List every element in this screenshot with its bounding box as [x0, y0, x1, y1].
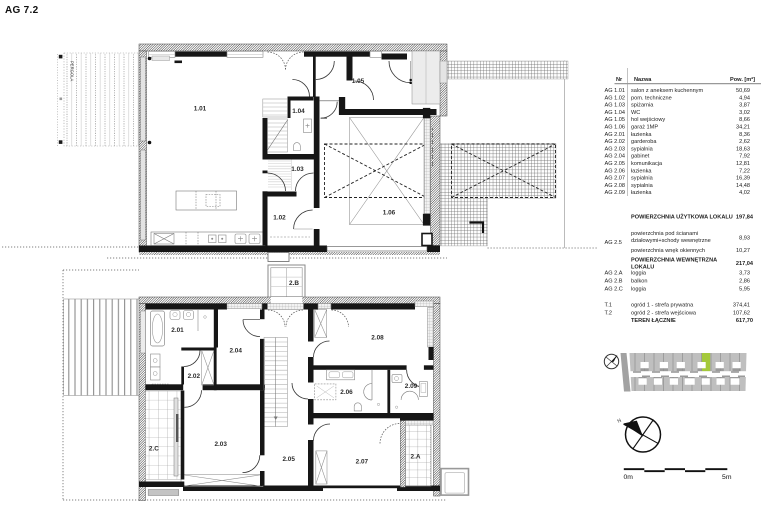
- svg-text:0m: 0m: [624, 474, 634, 481]
- svg-text:POWIERZCHNIA UŻYTKOWA LOKALU: POWIERZCHNIA UŻYTKOWA LOKALU: [631, 214, 733, 221]
- svg-text:garaż 1MP: garaż 1MP: [631, 125, 658, 131]
- svg-text:2.04: 2.04: [229, 348, 242, 355]
- svg-text:3,87: 3,87: [739, 103, 750, 109]
- svg-text:2.A: 2.A: [411, 454, 421, 461]
- svg-text:8,66: 8,66: [739, 117, 750, 123]
- svg-text:sypialnia: sypialnia: [631, 146, 654, 152]
- svg-text:AG 2.04: AG 2.04: [605, 154, 626, 160]
- svg-text:pom. techniczne: pom. techniczne: [631, 95, 672, 101]
- svg-text:powierzchnia wnęk okiennych: powierzchnia wnęk okiennych: [631, 248, 705, 254]
- svg-text:łazienka: łazienka: [631, 190, 652, 196]
- svg-text:AG 2.5: AG 2.5: [605, 240, 622, 246]
- svg-text:hol wejściowy: hol wejściowy: [631, 117, 665, 123]
- svg-text:N: N: [617, 418, 623, 425]
- svg-text:4,94: 4,94: [739, 95, 750, 101]
- svg-text:AG 2.06: AG 2.06: [605, 168, 626, 174]
- svg-text:1.04: 1.04: [292, 108, 305, 115]
- svg-text:Nazwa: Nazwa: [634, 77, 652, 83]
- svg-text:ogród 1 - strefa prywatna: ogród 1 - strefa prywatna: [631, 303, 694, 309]
- svg-text:AG 1.01: AG 1.01: [605, 88, 626, 94]
- svg-text:8,36: 8,36: [739, 132, 750, 138]
- svg-text:4,02: 4,02: [739, 190, 750, 196]
- svg-text:sypialnia: sypialnia: [631, 183, 654, 189]
- svg-text:2.09: 2.09: [405, 383, 418, 390]
- svg-text:1.06: 1.06: [383, 210, 396, 217]
- svg-text:AG 2.07: AG 2.07: [605, 176, 626, 182]
- svg-text:Pow. [m²]: Pow. [m²]: [730, 76, 755, 83]
- svg-text:PERGOLA: PERGOLA: [70, 61, 75, 81]
- svg-text:T.1: T.1: [605, 303, 612, 309]
- svg-text:10,27: 10,27: [736, 248, 750, 254]
- svg-text:działowymi+schody wewnętrzne: działowymi+schody wewnętrzne: [631, 238, 711, 244]
- svg-text:sypialnia: sypialnia: [631, 176, 654, 182]
- svg-text:5,95: 5,95: [739, 287, 750, 293]
- svg-text:WC: WC: [631, 110, 640, 116]
- svg-text:217,04: 217,04: [736, 261, 754, 267]
- svg-text:7,92: 7,92: [739, 154, 750, 160]
- svg-text:AG 2.01: AG 2.01: [605, 132, 626, 138]
- svg-text:AG 1.02: AG 1.02: [605, 95, 626, 101]
- svg-text:łazienka: łazienka: [631, 168, 652, 174]
- svg-text:loggia: loggia: [631, 271, 647, 277]
- svg-text:8,93: 8,93: [739, 236, 750, 242]
- svg-text:197,84: 197,84: [736, 215, 754, 221]
- svg-text:50,69: 50,69: [736, 88, 750, 94]
- svg-text:5m: 5m: [722, 474, 732, 481]
- svg-text:2.07: 2.07: [356, 459, 369, 466]
- svg-text:1.01: 1.01: [194, 106, 207, 113]
- svg-text:2.05: 2.05: [282, 456, 295, 463]
- svg-text:7,22: 7,22: [739, 168, 750, 174]
- svg-text:14,48: 14,48: [736, 183, 750, 189]
- svg-text:komunikacja: komunikacja: [631, 161, 663, 167]
- svg-text:374,41: 374,41: [733, 303, 750, 309]
- svg-text:2.02: 2.02: [188, 373, 201, 380]
- svg-text:AG 1.06: AG 1.06: [605, 125, 626, 131]
- svg-text:2.B: 2.B: [289, 280, 299, 287]
- svg-text:2.03: 2.03: [214, 441, 227, 448]
- svg-text:balkon: balkon: [631, 279, 647, 285]
- svg-text:powierzchnia pod ścianami: powierzchnia pod ścianami: [631, 231, 698, 237]
- svg-text:AG 2.B: AG 2.B: [605, 279, 623, 285]
- svg-text:2.C: 2.C: [149, 446, 159, 453]
- svg-text:AG 1.03: AG 1.03: [605, 103, 626, 109]
- svg-text:3,73: 3,73: [739, 271, 750, 277]
- svg-text:łazienka: łazienka: [631, 132, 652, 138]
- svg-text:AG 1.05: AG 1.05: [605, 117, 626, 123]
- svg-text:2,62: 2,62: [739, 139, 750, 145]
- svg-text:Nr: Nr: [616, 77, 623, 83]
- svg-text:1.02: 1.02: [273, 215, 286, 222]
- svg-text:gabinet: gabinet: [631, 154, 650, 160]
- svg-text:107,62: 107,62: [733, 311, 750, 317]
- svg-text:18,63: 18,63: [736, 146, 750, 152]
- svg-text:T.2: T.2: [605, 311, 612, 317]
- svg-text:2.06: 2.06: [340, 389, 353, 396]
- svg-text:3,02: 3,02: [739, 110, 750, 116]
- svg-text:AG 1.04: AG 1.04: [605, 110, 626, 116]
- svg-text:spiżarnia: spiżarnia: [631, 103, 654, 109]
- svg-text:loggia: loggia: [631, 287, 647, 293]
- svg-text:2.08: 2.08: [371, 335, 384, 342]
- svg-text:POWIERZCHNIA WEWNĘTRZNA: POWIERZCHNIA WEWNĘTRZNA: [631, 258, 717, 264]
- svg-text:AG 2.08: AG 2.08: [605, 183, 626, 189]
- svg-text:2.01: 2.01: [171, 327, 184, 334]
- svg-text:TEREN ŁĄCZNIE: TEREN ŁĄCZNIE: [631, 318, 676, 324]
- svg-text:AG 2.05: AG 2.05: [605, 161, 626, 167]
- svg-text:garderoba: garderoba: [631, 139, 657, 145]
- svg-text:1.03: 1.03: [291, 166, 304, 173]
- svg-text:AG 2.09: AG 2.09: [605, 190, 626, 196]
- svg-text:16,39: 16,39: [736, 176, 750, 182]
- svg-text:34,21: 34,21: [736, 125, 750, 131]
- svg-text:2,86: 2,86: [739, 279, 750, 285]
- svg-text:12,81: 12,81: [736, 161, 750, 167]
- svg-text:AG 2.A: AG 2.A: [605, 271, 623, 277]
- svg-text:617,70: 617,70: [736, 318, 753, 324]
- svg-text:AG 2.02: AG 2.02: [605, 139, 626, 145]
- svg-text:AG 2.C: AG 2.C: [605, 287, 623, 293]
- svg-text:AG 2.03: AG 2.03: [605, 146, 626, 152]
- svg-text:salon z aneksem kuchennym: salon z aneksem kuchennym: [631, 88, 703, 94]
- svg-text:ogród 2 - strefa wejściowa: ogród 2 - strefa wejściowa: [631, 311, 697, 317]
